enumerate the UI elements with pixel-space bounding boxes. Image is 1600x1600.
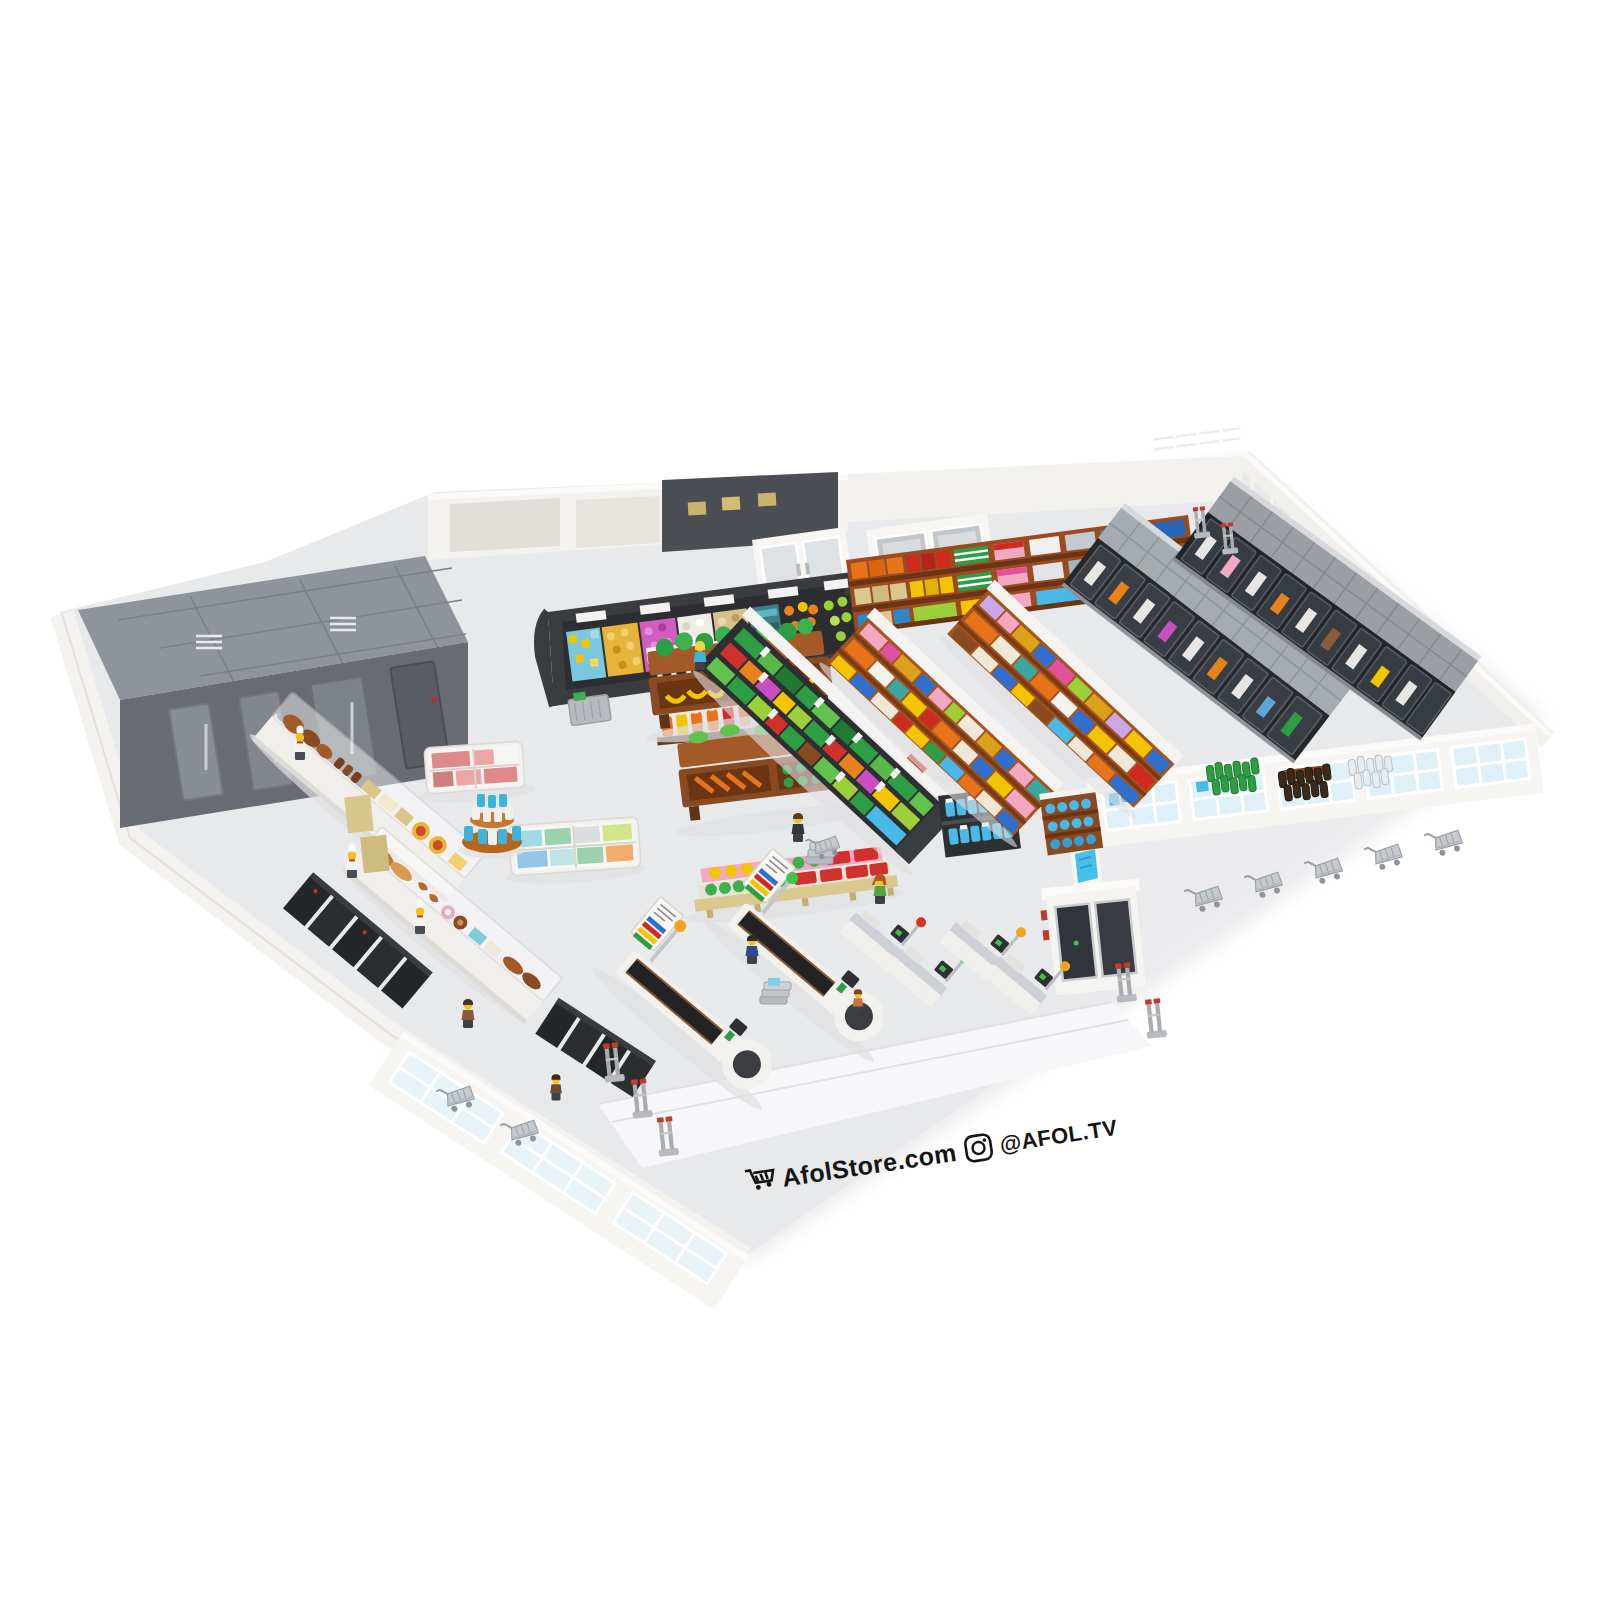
basket-item xyxy=(768,978,780,986)
instagram-icon xyxy=(964,1134,992,1162)
minifig-cashier xyxy=(746,935,759,964)
minifig-produce-clerk xyxy=(694,641,707,670)
instagram-handle-text: @AFOL.TV xyxy=(998,1115,1119,1157)
scene-canvas: AfolStore.com @AFOL.TV xyxy=(0,0,1600,1600)
minifig-entrance-shopper xyxy=(550,1074,562,1100)
minifig-butcher xyxy=(462,999,475,1028)
chest-freezer-meat xyxy=(416,740,536,805)
minifig-customer-man xyxy=(792,813,805,842)
minifig-child xyxy=(853,989,864,1013)
lego-supermarket-render: AfolStore.com @AFOL.TV xyxy=(0,0,1600,1600)
gondola1-endcap xyxy=(1039,786,1103,855)
